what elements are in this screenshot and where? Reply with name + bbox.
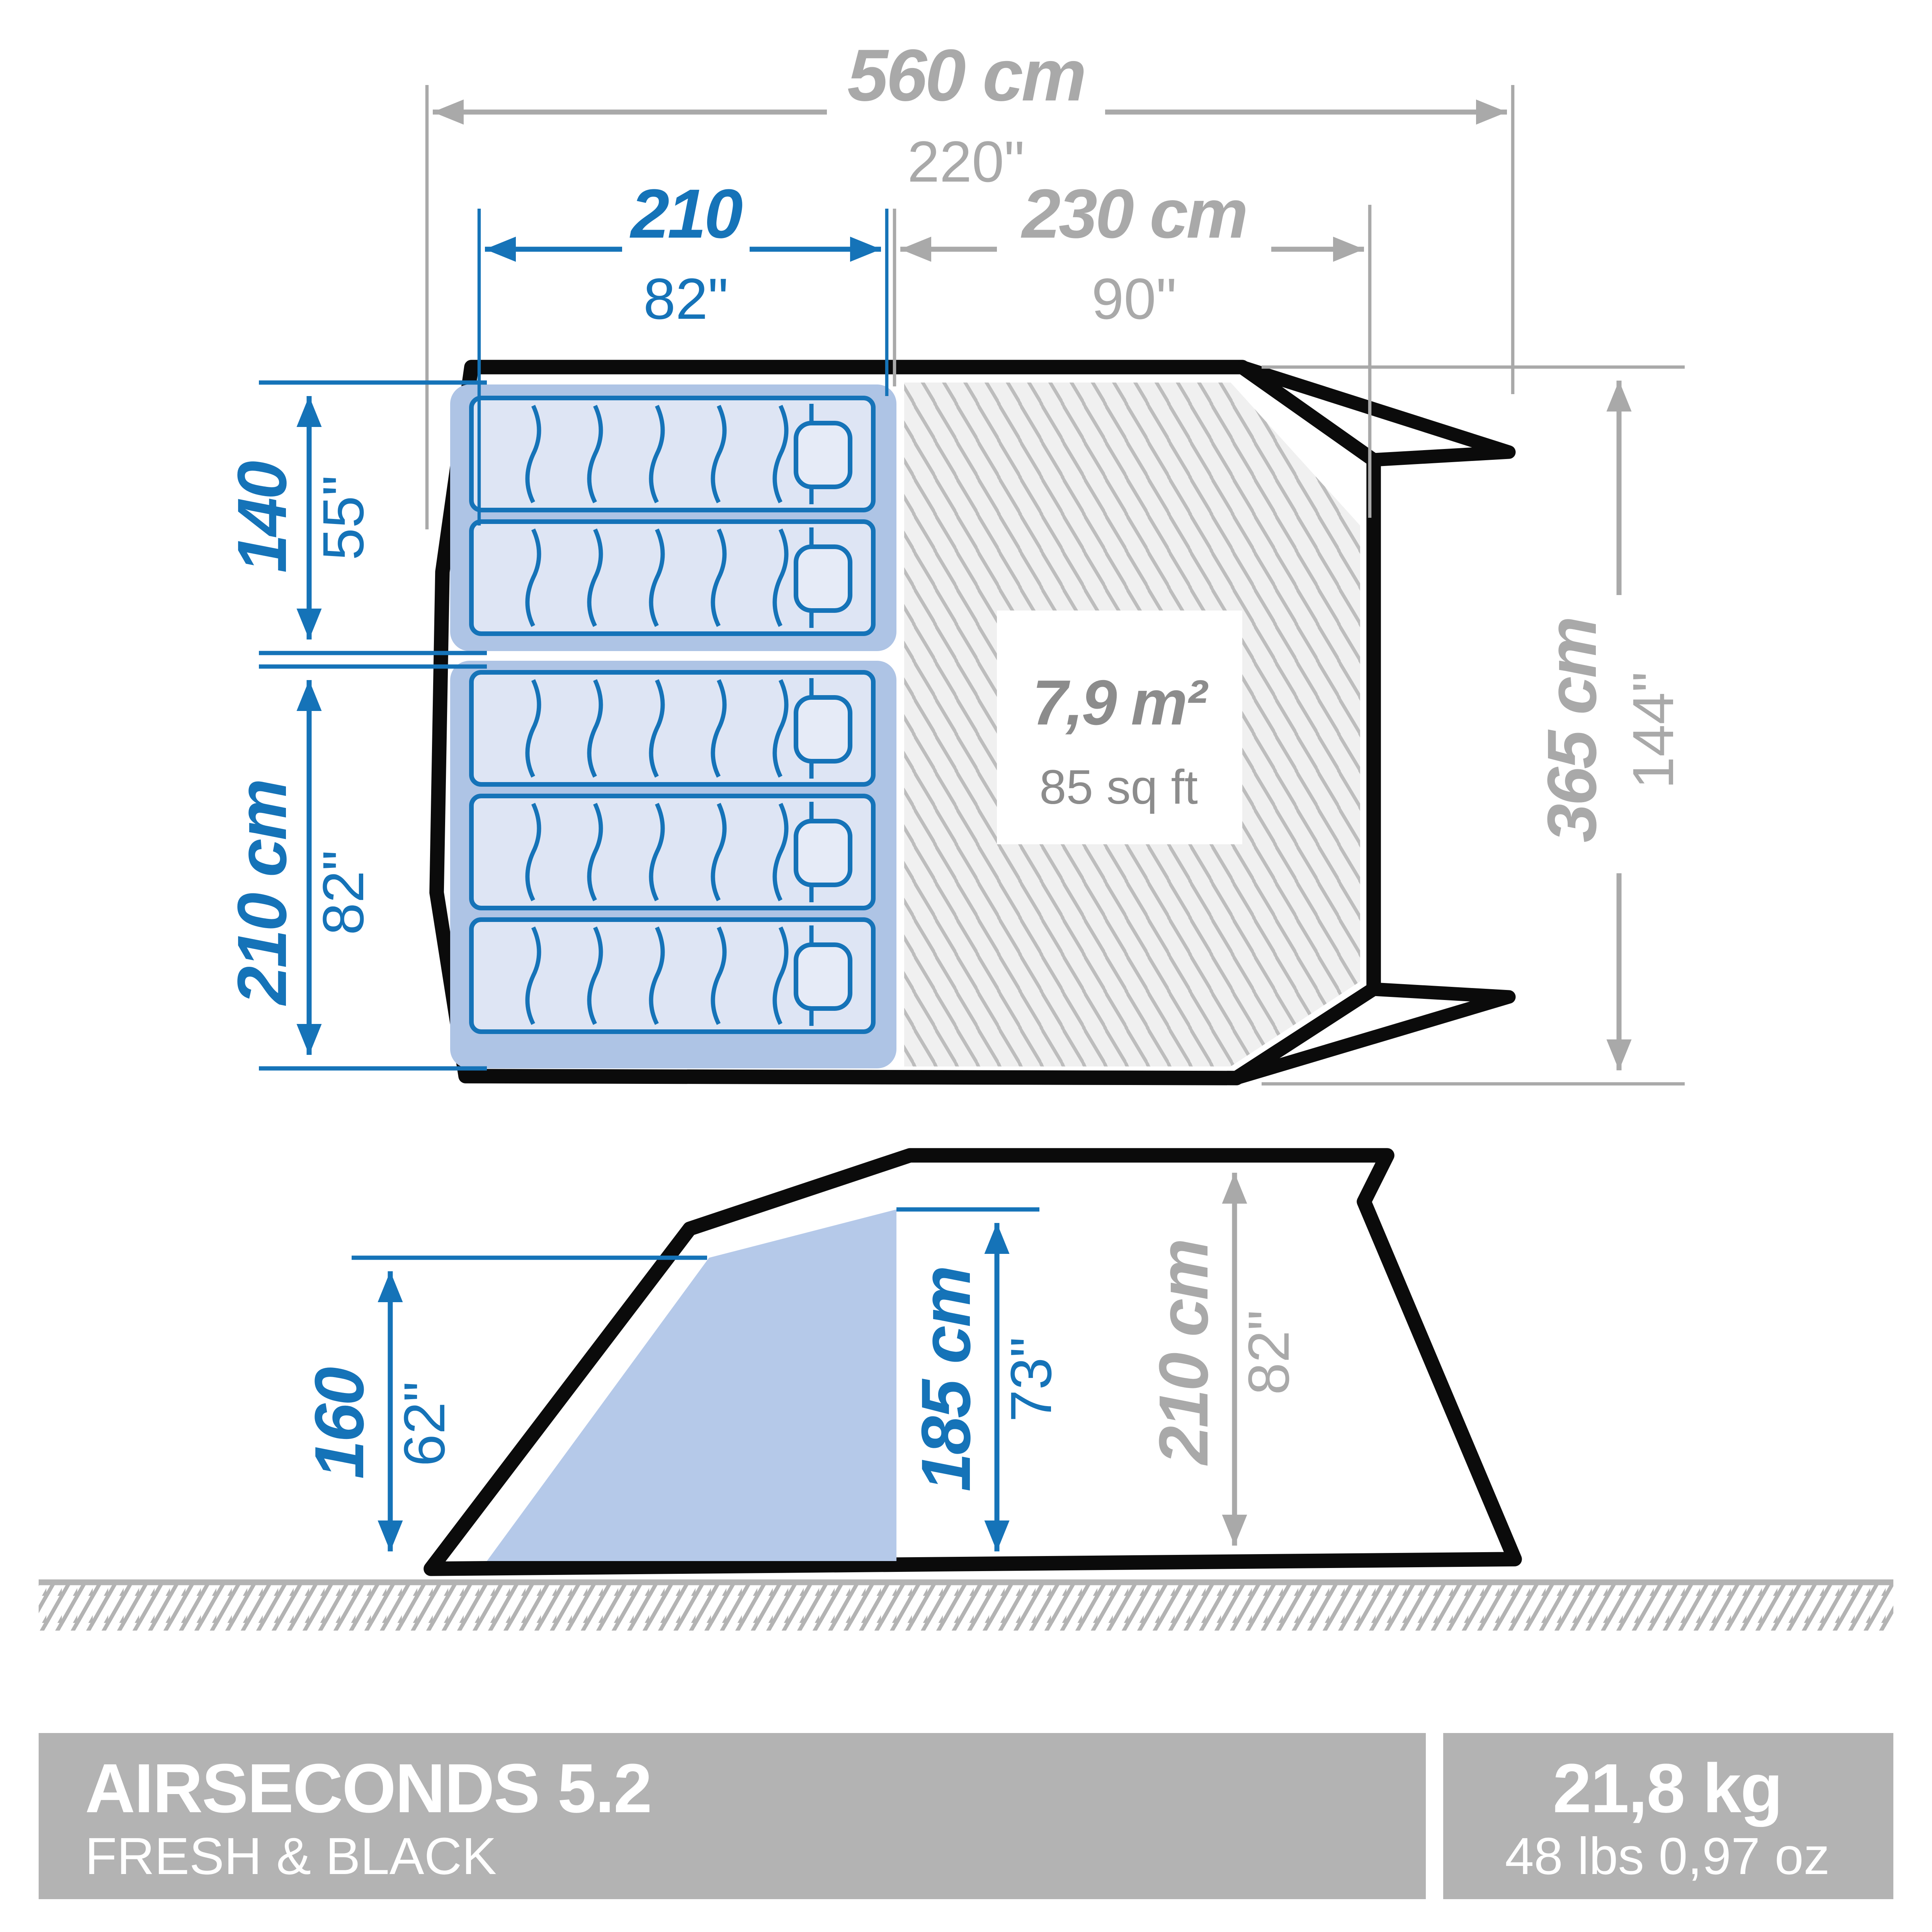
dim-peak-height-cm: 210 cm: [1145, 1240, 1223, 1466]
weight-metric: 21,8 kg: [1553, 1750, 1782, 1827]
dim-bedroom-large-depth-in: 82": [311, 850, 376, 935]
tent-dimension-diagram: 7,9 m² 85 sq ft 560 cm 220" 210 82" 230: [0, 0, 1932, 1932]
dim-bedroom-large-depth-cm: 210 cm: [223, 781, 301, 1006]
dim-interior-height-in: 73": [998, 1337, 1063, 1422]
weight-imperial: 48 lbs 0,97 oz: [1505, 1827, 1830, 1885]
dim-interior-height-cm: 185 cm: [907, 1267, 985, 1492]
dim-bedroom-width-in: 82": [643, 266, 728, 331]
footer: AIRSECONDS 5.2 FRESH & BLACK 21,8 kg 48 …: [39, 1733, 1893, 1899]
dim-total-width-in: 220": [907, 129, 1025, 194]
mattress: [471, 672, 873, 784]
dim-bedroom-small-depth-in: 55": [311, 475, 376, 560]
mattress: [471, 796, 873, 908]
dim-bedroom-width-cm: 210: [629, 175, 742, 253]
product-variant: FRESH & BLACK: [85, 1827, 497, 1885]
dim-bedroom-small-depth-cm: 140: [223, 461, 301, 573]
plan-view: 7,9 m² 85 sq ft 560 cm 220" 210 82" 230: [223, 34, 1685, 1084]
living-area-value: 7,9 m²: [1032, 667, 1209, 738]
mattress: [471, 920, 873, 1032]
dim-peak-height-in: 82": [1236, 1310, 1301, 1395]
dim-bedroom-height-cm: 160: [301, 1367, 378, 1479]
product-name: AIRSECONDS 5.2: [85, 1750, 651, 1827]
diagram-canvas: 7,9 m² 85 sq ft 560 cm 220" 210 82" 230: [0, 0, 1932, 1932]
dim-bedroom-height-in: 62": [392, 1381, 457, 1466]
ground-hatch: [39, 1582, 1893, 1631]
dim-total-depth-in: 144": [1621, 672, 1685, 789]
dim-total-width-cm: 560 cm: [847, 34, 1085, 116]
mattress: [471, 398, 873, 510]
dim-living-width-in: 90": [1092, 266, 1177, 331]
mattress: [471, 522, 873, 634]
living-area-imperial: 85 sq ft: [1039, 760, 1198, 814]
dim-total-depth-cm: 365 cm: [1533, 618, 1611, 843]
dim-living-width-cm: 230 cm: [1021, 175, 1247, 253]
side-view: 160 62" 185 cm 73" 210 cm 82": [39, 1155, 1893, 1631]
